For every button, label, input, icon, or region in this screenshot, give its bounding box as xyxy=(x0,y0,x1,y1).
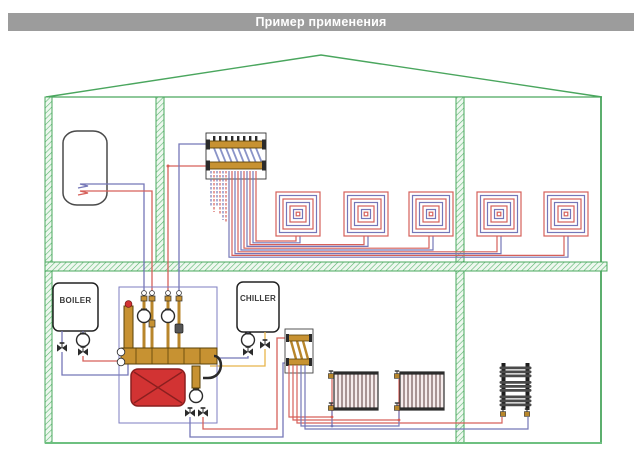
intermediate-floor-slab xyxy=(45,262,607,271)
towel-rail-supply-valve-icon xyxy=(500,409,505,416)
radiator-manifold-return-bar xyxy=(287,359,311,365)
floor-heating-manifold xyxy=(206,133,266,179)
wall-middle-upper xyxy=(156,97,164,262)
radiator-supply-valve-icon xyxy=(394,371,399,378)
floor-loop-spiral-2 xyxy=(344,192,388,236)
boiler-pump-icon xyxy=(77,334,90,347)
floor-loop-spiral-3 xyxy=(409,192,453,236)
circuit-pump-icon-2 xyxy=(162,310,175,323)
panel-radiator-1 xyxy=(328,371,378,410)
pump-mixing-group xyxy=(117,287,221,423)
mixing-valve-column xyxy=(124,306,133,348)
manifold-return-bar xyxy=(209,162,263,169)
floor-heating-loops xyxy=(276,192,588,236)
thermostat-head xyxy=(125,301,132,308)
chiller-unit: CHILLER xyxy=(210,282,279,366)
boiler-box xyxy=(53,283,98,331)
radiator-supply-valve-icon xyxy=(328,371,333,378)
thermometer-icon xyxy=(117,348,125,356)
expansion-tank xyxy=(131,369,185,406)
application-example-figure: Пример применения xyxy=(0,0,642,456)
floor-loop-spiral-5 xyxy=(544,192,588,236)
thermometer-icon xyxy=(117,358,125,366)
boiler-unit: BOILER xyxy=(53,283,128,375)
boiler-supply-valve-icon xyxy=(78,347,88,356)
chiller-pump-icon xyxy=(242,334,255,347)
pipe-junction-dot xyxy=(167,165,170,168)
pump-group-manifold-bar xyxy=(121,348,217,364)
riser-air-vents xyxy=(142,291,182,296)
mixing-valve-actuator xyxy=(175,324,183,333)
secondary-return-valve-icon xyxy=(185,408,195,417)
house-schematic: BOILER CHILLER xyxy=(0,0,642,456)
roof-line xyxy=(46,55,602,97)
towel-rail-bars xyxy=(500,367,532,407)
chiller-label: CHILLER xyxy=(240,294,276,303)
boiler-label: BOILER xyxy=(59,296,91,305)
water-heater-tank xyxy=(63,131,107,205)
floor-loop-spiral-4 xyxy=(477,192,521,236)
radiator-return-valve-icon xyxy=(328,403,333,410)
chiller-valve-icon xyxy=(243,347,253,356)
chiller-yellow-valve-icon xyxy=(260,340,270,349)
panel-radiator-2 xyxy=(394,371,444,410)
secondary-supply-valve-icon xyxy=(198,408,208,417)
balancing-valve xyxy=(149,320,155,327)
circuit-pump-icon-1 xyxy=(138,310,151,323)
floor-loop-spiral-1 xyxy=(276,192,320,236)
radiator-manifold-supply-bar xyxy=(287,335,311,341)
boiler-return-valve-icon xyxy=(57,343,67,352)
towel-rail-radiator xyxy=(500,363,532,416)
riser-pipes xyxy=(96,144,208,296)
secondary-riser xyxy=(192,366,200,388)
riser-top-valves xyxy=(141,296,182,301)
towel-rail-return-valve-icon xyxy=(524,409,529,416)
chiller-box xyxy=(237,282,279,332)
secondary-pump-icon xyxy=(190,390,203,403)
manifold-supply-bar xyxy=(209,141,263,148)
house-structure xyxy=(45,55,607,443)
